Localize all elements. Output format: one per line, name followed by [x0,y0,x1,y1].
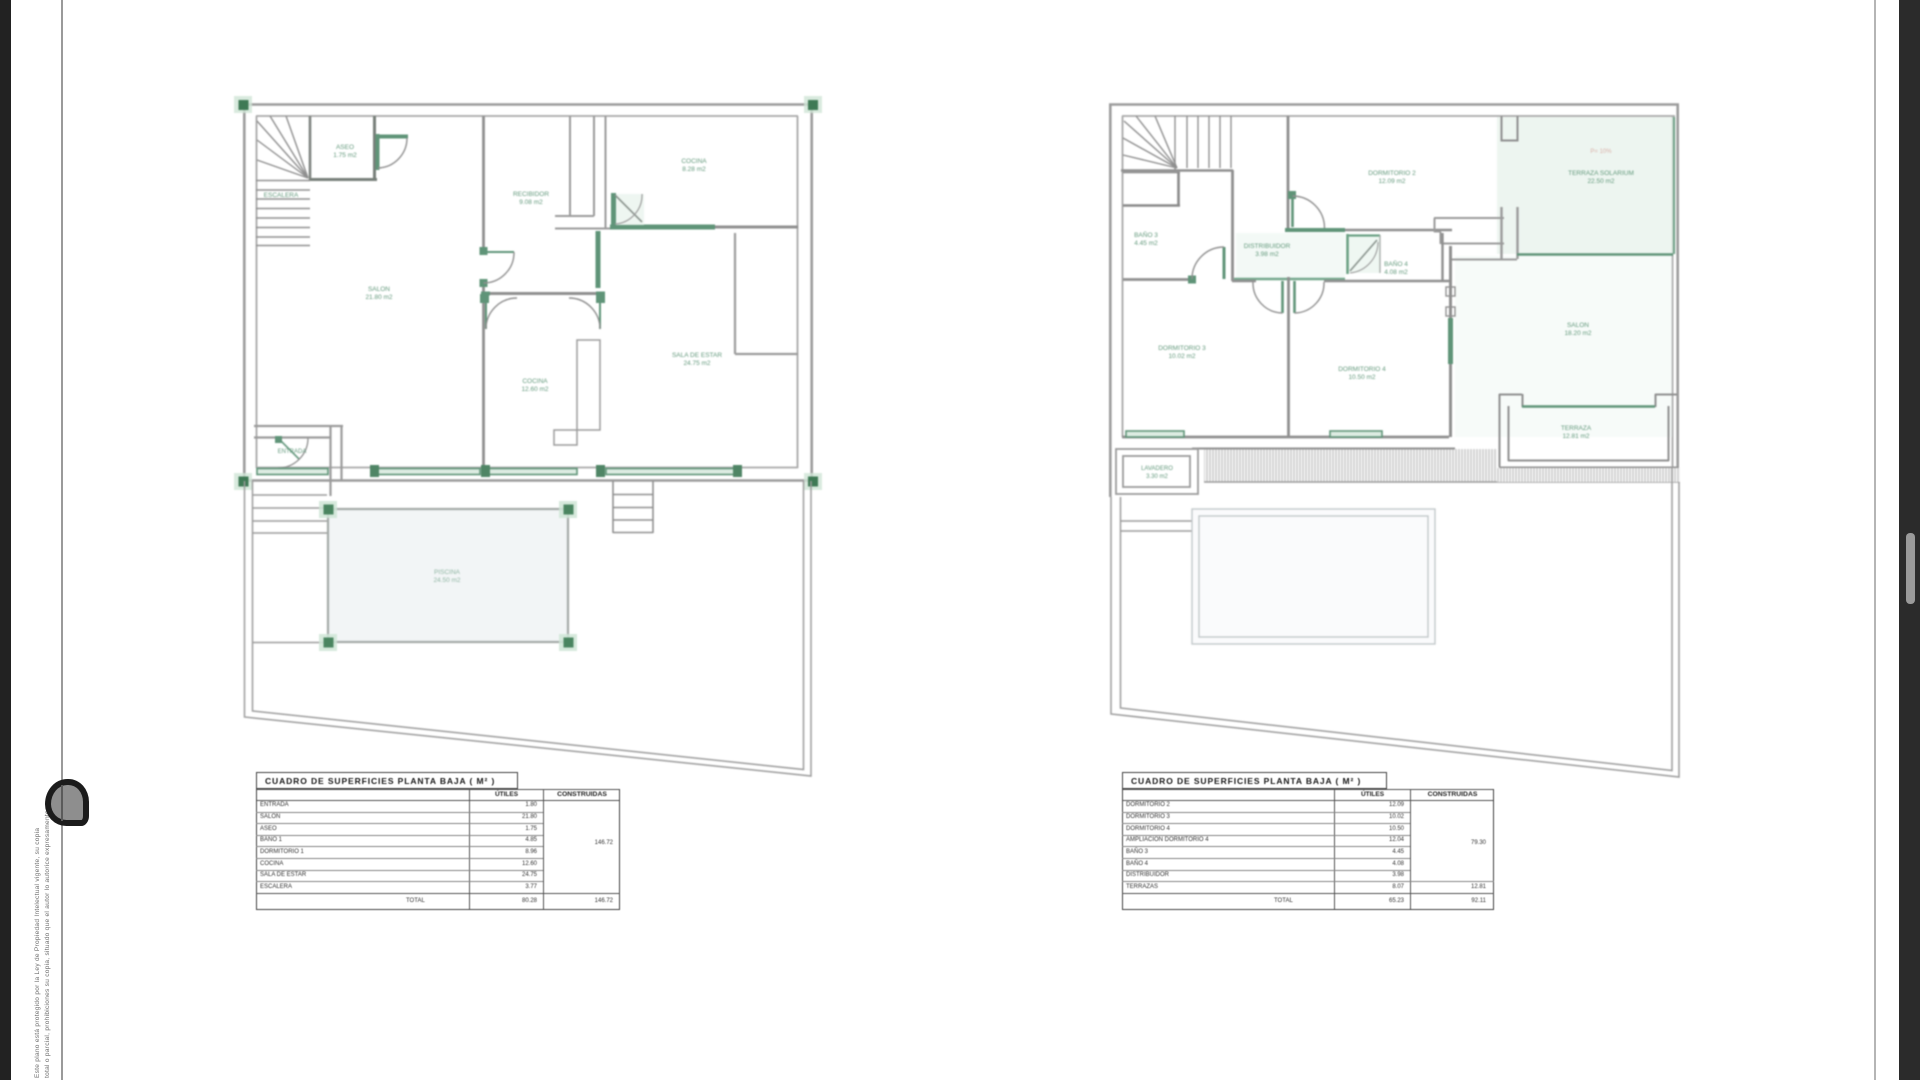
svg-text:12.60 m2: 12.60 m2 [521,386,548,393]
svg-text:DORMITORIO 3: DORMITORIO 3 [1158,345,1206,352]
svg-text:BAÑO 3: BAÑO 3 [1134,230,1158,239]
svg-text:22.50 m2: 22.50 m2 [1587,178,1614,185]
svg-text:ENTRADA: ENTRADA [278,449,307,455]
svg-text:10.50 m2: 10.50 m2 [1348,374,1375,381]
svg-text:DISTRIBUIDOR: DISTRIBUIDOR [1244,243,1291,250]
svg-text:SALON: SALON [368,286,390,293]
svg-text:ASEO: ASEO [336,144,354,151]
svg-text:24.75 m2: 24.75 m2 [683,360,710,367]
svg-text:3.30 m2: 3.30 m2 [1146,474,1168,480]
svg-text:10.02 m2: 10.02 m2 [1168,353,1195,360]
svg-text:1.75 m2: 1.75 m2 [333,152,357,159]
svg-text:TERRAZA: TERRAZA [1561,425,1592,432]
svg-text:SALA DE ESTAR: SALA DE ESTAR [672,352,722,359]
svg-text:PISCINA: PISCINA [434,569,461,576]
svg-text:21.80 m2: 21.80 m2 [365,294,392,301]
svg-text:COCINA: COCINA [681,158,707,165]
svg-text:BAÑO 4: BAÑO 4 [1384,259,1408,268]
svg-text:RECIBIDOR: RECIBIDOR [513,191,549,198]
svg-text:LAVADERO: LAVADERO [1141,466,1173,472]
svg-text:SALON: SALON [1567,322,1589,329]
svg-text:9.08 m2: 9.08 m2 [519,199,543,206]
svg-text:3.98 m2: 3.98 m2 [1255,251,1279,258]
svg-text:TERRAZA SOLARIUM: TERRAZA SOLARIUM [1568,170,1634,177]
svg-text:24.50 m2: 24.50 m2 [433,577,460,584]
svg-text:12.81 m2: 12.81 m2 [1562,433,1589,440]
svg-text:8.28 m2: 8.28 m2 [682,166,706,173]
svg-text:4.45 m2: 4.45 m2 [1134,240,1158,247]
svg-text:P= 10%: P= 10% [1590,149,1612,155]
svg-text:COCINA: COCINA [522,378,548,385]
svg-text:18.20 m2: 18.20 m2 [1564,330,1591,337]
svg-text:DORMITORIO 4: DORMITORIO 4 [1338,366,1386,373]
svg-text:4.08 m2: 4.08 m2 [1384,269,1408,276]
svg-text:12.09 m2: 12.09 m2 [1378,178,1405,185]
svg-text:DORMITORIO 2: DORMITORIO 2 [1368,170,1416,177]
svg-text:ESCALERA: ESCALERA [264,192,299,199]
